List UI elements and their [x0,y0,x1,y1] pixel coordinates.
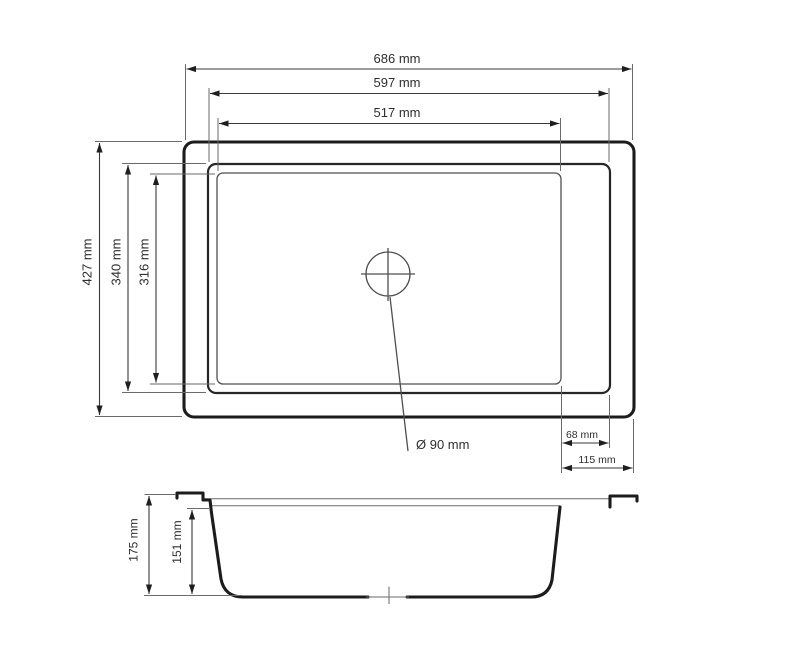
dim-label-outer-depth: 427 mm [80,239,95,286]
dim-label-rim-depth: 340 mm [109,239,124,286]
dim-total-height: 175 mm [127,495,177,595]
dim-label-outer-width: 686 mm [374,51,421,66]
dim-label-basin-to-rim-offset: 68 mm [566,429,598,441]
profile-right [407,507,560,597]
side-view: 175 mm 151 mm [127,493,638,604]
dim-bowl-depth: 151 mm [170,509,209,595]
dim-outer-depth: 427 mm [80,142,183,417]
basin-bottom-outline [217,173,561,384]
dim-basin-depth: 316 mm [137,174,216,384]
dim-outer-width: 686 mm [186,51,633,140]
sink-dimension-diagram: Ø 90 mm 686 mm 597 mm 517 mm [0,0,800,658]
dim-label-total-height: 175 mm [127,518,141,561]
dim-label-basin-to-edge-offset: 115 mm [578,454,615,466]
dim-label-bowl-depth: 151 mm [170,520,184,563]
top-view: Ø 90 mm 686 mm 597 mm 517 mm [80,51,635,473]
drain-leader-line [390,297,408,451]
dim-right-offsets: 68 mm 115 mm [562,386,634,473]
dim-label-basin-width: 517 mm [374,105,421,120]
dim-label-rim-width: 597 mm [374,75,421,90]
dim-basin-width: 517 mm [218,105,561,171]
drain-symbol: Ø 90 mm [361,248,469,452]
dim-label-basin-depth: 316 mm [137,239,152,286]
profile-right-flange [610,496,637,507]
dim-rim-depth: 340 mm [109,164,207,393]
dim-label-drain-diameter: Ø 90 mm [416,437,469,452]
